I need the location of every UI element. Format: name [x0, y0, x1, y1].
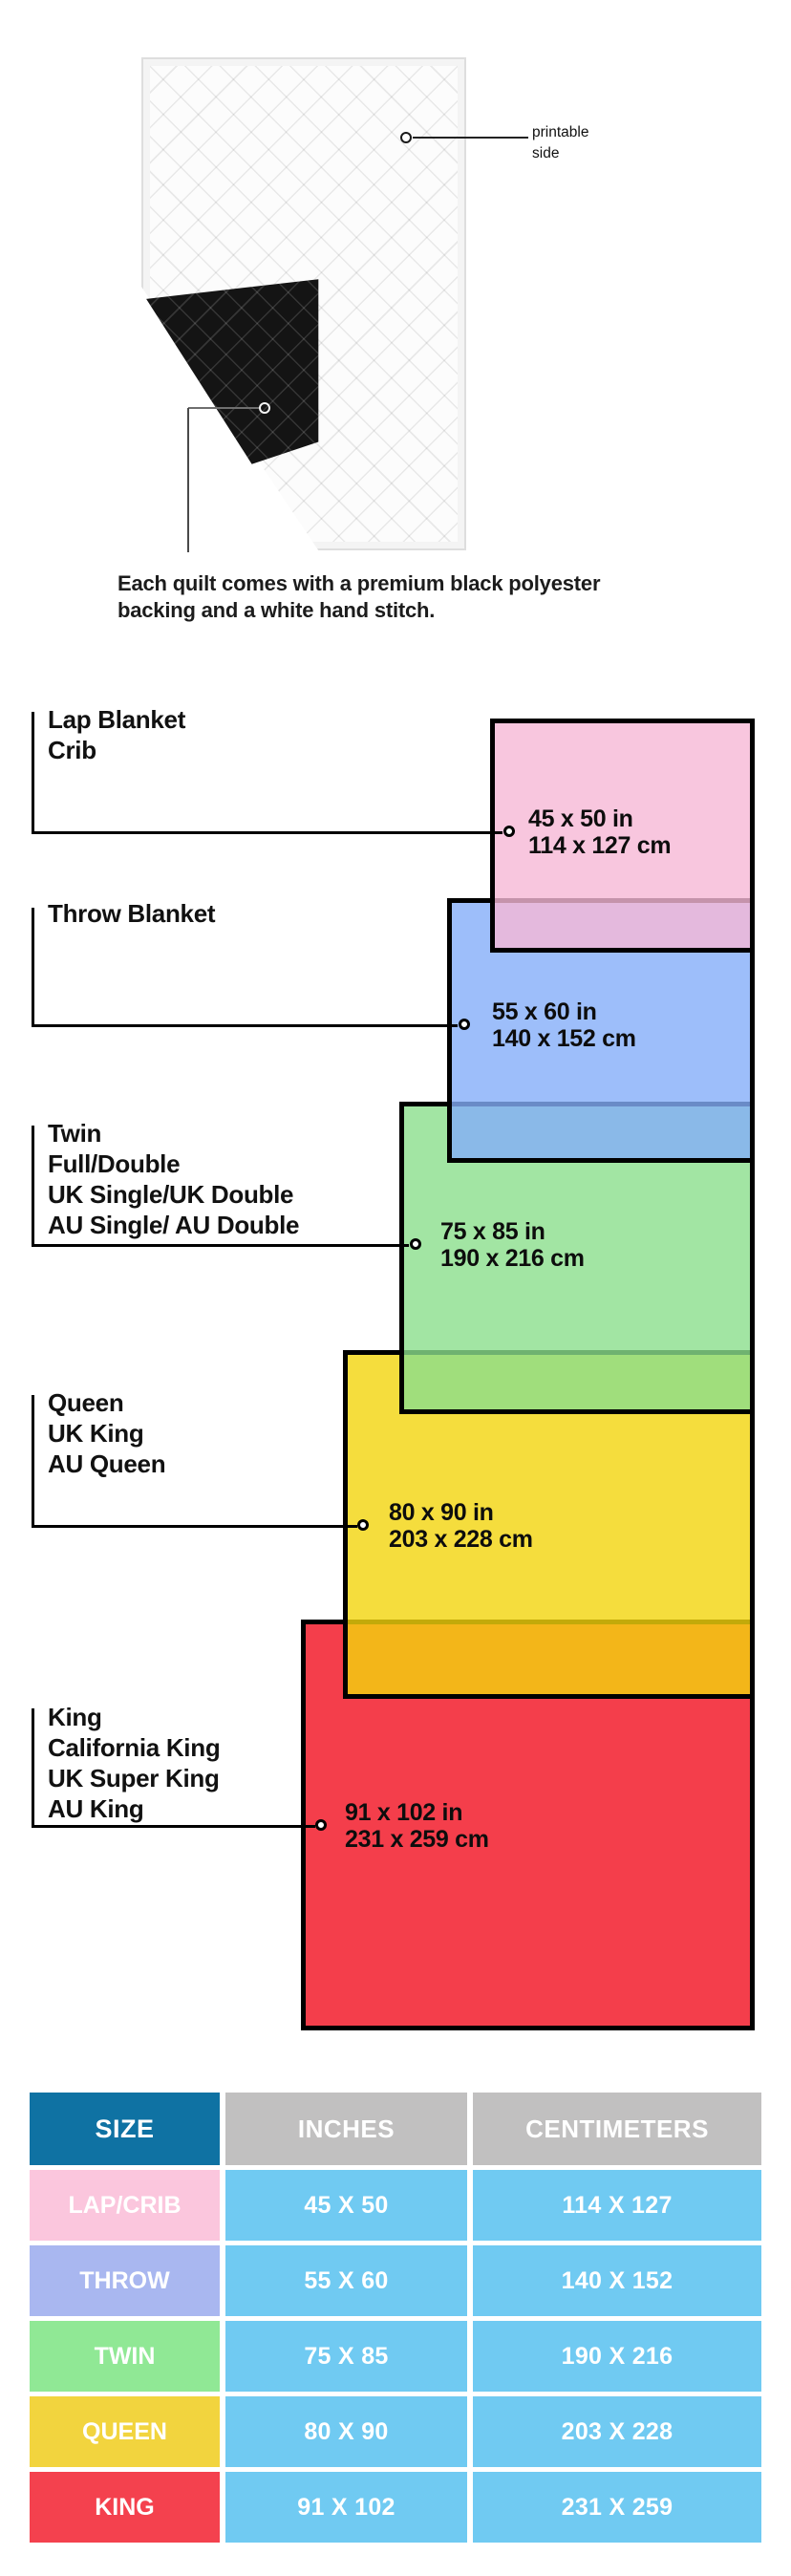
size-label-lap-line2: Crib: [48, 735, 185, 765]
lap-callout-dot-icon: [503, 826, 515, 837]
table-row-twin-inches: 75 X 85: [225, 2321, 467, 2392]
size-label-twin-line4: AU Single/ AU Double: [48, 1210, 299, 1240]
lap-dims-cm: 114 x 127 cm: [528, 832, 671, 859]
table-row-lap-size: LAP/CRIB: [30, 2170, 220, 2241]
king-dims-cm: 231 x 259 cm: [345, 1826, 489, 1853]
throw-callout-line-vertical: [32, 908, 34, 1026]
table-row-twin-size: TWIN: [30, 2321, 220, 2392]
size-label-king-line2: California King: [48, 1732, 220, 1763]
size-label-king-line3: UK Super King: [48, 1763, 220, 1793]
size-label-king-line4: AU King: [48, 1793, 220, 1824]
lap-callout-line-vertical: [32, 712, 34, 833]
size-dims-king: 91 x 102 in 231 x 259 cm: [345, 1799, 489, 1853]
size-label-throw: Throw Blanket: [48, 898, 215, 929]
hero-caption: Each quilt comes with a premium black po…: [118, 570, 600, 624]
size-label-king: King California King UK Super King AU Ki…: [48, 1702, 220, 1824]
lap-dims-inches: 45 x 50 in: [528, 805, 671, 832]
printable-side-label-line2: side: [532, 143, 588, 164]
printable-side-label: printable side: [532, 122, 588, 164]
table-row-lap-inches: 45 X 50: [225, 2170, 467, 2241]
size-label-queen-line1: Queen: [48, 1387, 165, 1418]
table-header-size: SIZE: [30, 2093, 220, 2165]
backing-callout-line-horizontal: [188, 407, 259, 409]
size-dims-queen: 80 x 90 in 203 x 228 cm: [389, 1499, 533, 1553]
printable-side-callout-line: [413, 137, 528, 139]
table-row-queen-cm: 203 X 228: [473, 2396, 761, 2467]
size-dims-twin: 75 x 85 in 190 x 216 cm: [440, 1218, 585, 1272]
quilt-photo: [141, 57, 466, 550]
table-row-twin-cm: 190 X 216: [473, 2321, 761, 2392]
lap-callout-line-horizontal: [32, 831, 502, 834]
printable-side-label-line1: printable: [532, 122, 588, 143]
queen-callout-dot-icon: [357, 1519, 369, 1531]
size-dims-throw: 55 x 60 in 140 x 152 cm: [492, 998, 636, 1052]
king-dims-inches: 91 x 102 in: [345, 1799, 489, 1826]
table-row-lap-cm: 114 X 127: [473, 2170, 761, 2241]
throw-callout-line-horizontal: [32, 1024, 458, 1027]
size-table: SIZE INCHES CENTIMETERS LAP/CRIB 45 X 50…: [30, 2093, 761, 2543]
queen-dims-cm: 203 x 228 cm: [389, 1526, 533, 1553]
backing-callout-dot-icon: [259, 402, 270, 414]
hero-caption-line1: Each quilt comes with a premium black po…: [118, 570, 600, 597]
king-callout-line-vertical: [32, 1708, 34, 1827]
twin-callout-line-vertical: [32, 1126, 34, 1246]
table-row-throw-cm: 140 X 152: [473, 2245, 761, 2316]
queen-callout-line-horizontal: [32, 1525, 357, 1528]
table-header-centimeters: CENTIMETERS: [473, 2093, 761, 2165]
table-row-king-cm: 231 X 259: [473, 2472, 761, 2543]
size-label-twin: Twin Full/Double UK Single/UK Double AU …: [48, 1118, 299, 1240]
twin-dims-inches: 75 x 85 in: [440, 1218, 585, 1245]
size-dims-lap: 45 x 50 in 114 x 127 cm: [528, 805, 671, 859]
size-label-twin-line3: UK Single/UK Double: [48, 1179, 299, 1210]
size-label-queen: Queen UK King AU Queen: [48, 1387, 165, 1479]
twin-callout-dot-icon: [410, 1238, 421, 1250]
printable-side-callout-dot-icon: [400, 132, 412, 143]
table-row-king-inches: 91 X 102: [225, 2472, 467, 2543]
size-label-throw-line1: Throw Blanket: [48, 898, 215, 929]
table-row-throw-size: THROW: [30, 2245, 220, 2316]
size-label-lap-line1: Lap Blanket: [48, 704, 185, 735]
throw-dims-inches: 55 x 60 in: [492, 998, 636, 1025]
hero-caption-line2: backing and a white hand stitch.: [118, 597, 600, 624]
twin-dims-cm: 190 x 216 cm: [440, 1245, 585, 1272]
table-row-queen-inches: 80 X 90: [225, 2396, 467, 2467]
backing-callout-line-vertical: [187, 408, 189, 552]
queen-dims-inches: 80 x 90 in: [389, 1499, 533, 1526]
queen-callout-line-vertical: [32, 1395, 34, 1527]
size-label-lap: Lap Blanket Crib: [48, 704, 185, 765]
twin-callout-line-horizontal: [32, 1244, 409, 1247]
throw-callout-dot-icon: [459, 1019, 470, 1030]
table-row-throw-inches: 55 X 60: [225, 2245, 467, 2316]
table-header-inches: INCHES: [225, 2093, 467, 2165]
size-label-twin-line1: Twin: [48, 1118, 299, 1148]
king-callout-dot-icon: [315, 1819, 327, 1831]
throw-dims-cm: 140 x 152 cm: [492, 1025, 636, 1052]
king-callout-line-horizontal: [32, 1825, 315, 1828]
quilt-size-chart-page: printable side Each quilt comes with a p…: [0, 0, 791, 2576]
size-label-king-line1: King: [48, 1702, 220, 1732]
size-label-queen-line2: UK King: [48, 1418, 165, 1449]
table-row-king-size: KING: [30, 2472, 220, 2543]
size-label-queen-line3: AU Queen: [48, 1449, 165, 1479]
table-row-queen-size: QUEEN: [30, 2396, 220, 2467]
size-label-twin-line2: Full/Double: [48, 1148, 299, 1179]
